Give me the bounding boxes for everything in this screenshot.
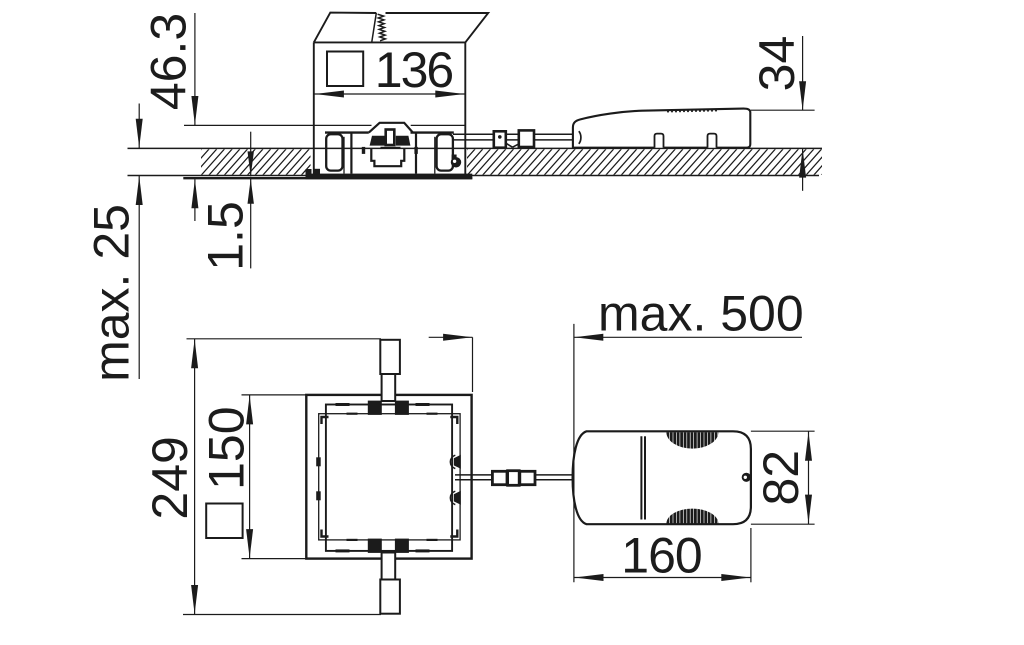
svg-text:1.5: 1.5 <box>198 201 254 271</box>
svg-text:136: 136 <box>375 42 453 98</box>
svg-text:249: 249 <box>142 436 198 519</box>
svg-text:max. 500: max. 500 <box>598 285 804 341</box>
svg-text:46.3: 46.3 <box>141 13 197 110</box>
svg-text:34: 34 <box>749 36 805 92</box>
svg-text:82: 82 <box>753 450 809 506</box>
svg-text:150: 150 <box>199 406 255 489</box>
svg-text:160: 160 <box>621 528 701 584</box>
svg-text:max. 25: max. 25 <box>84 204 140 382</box>
